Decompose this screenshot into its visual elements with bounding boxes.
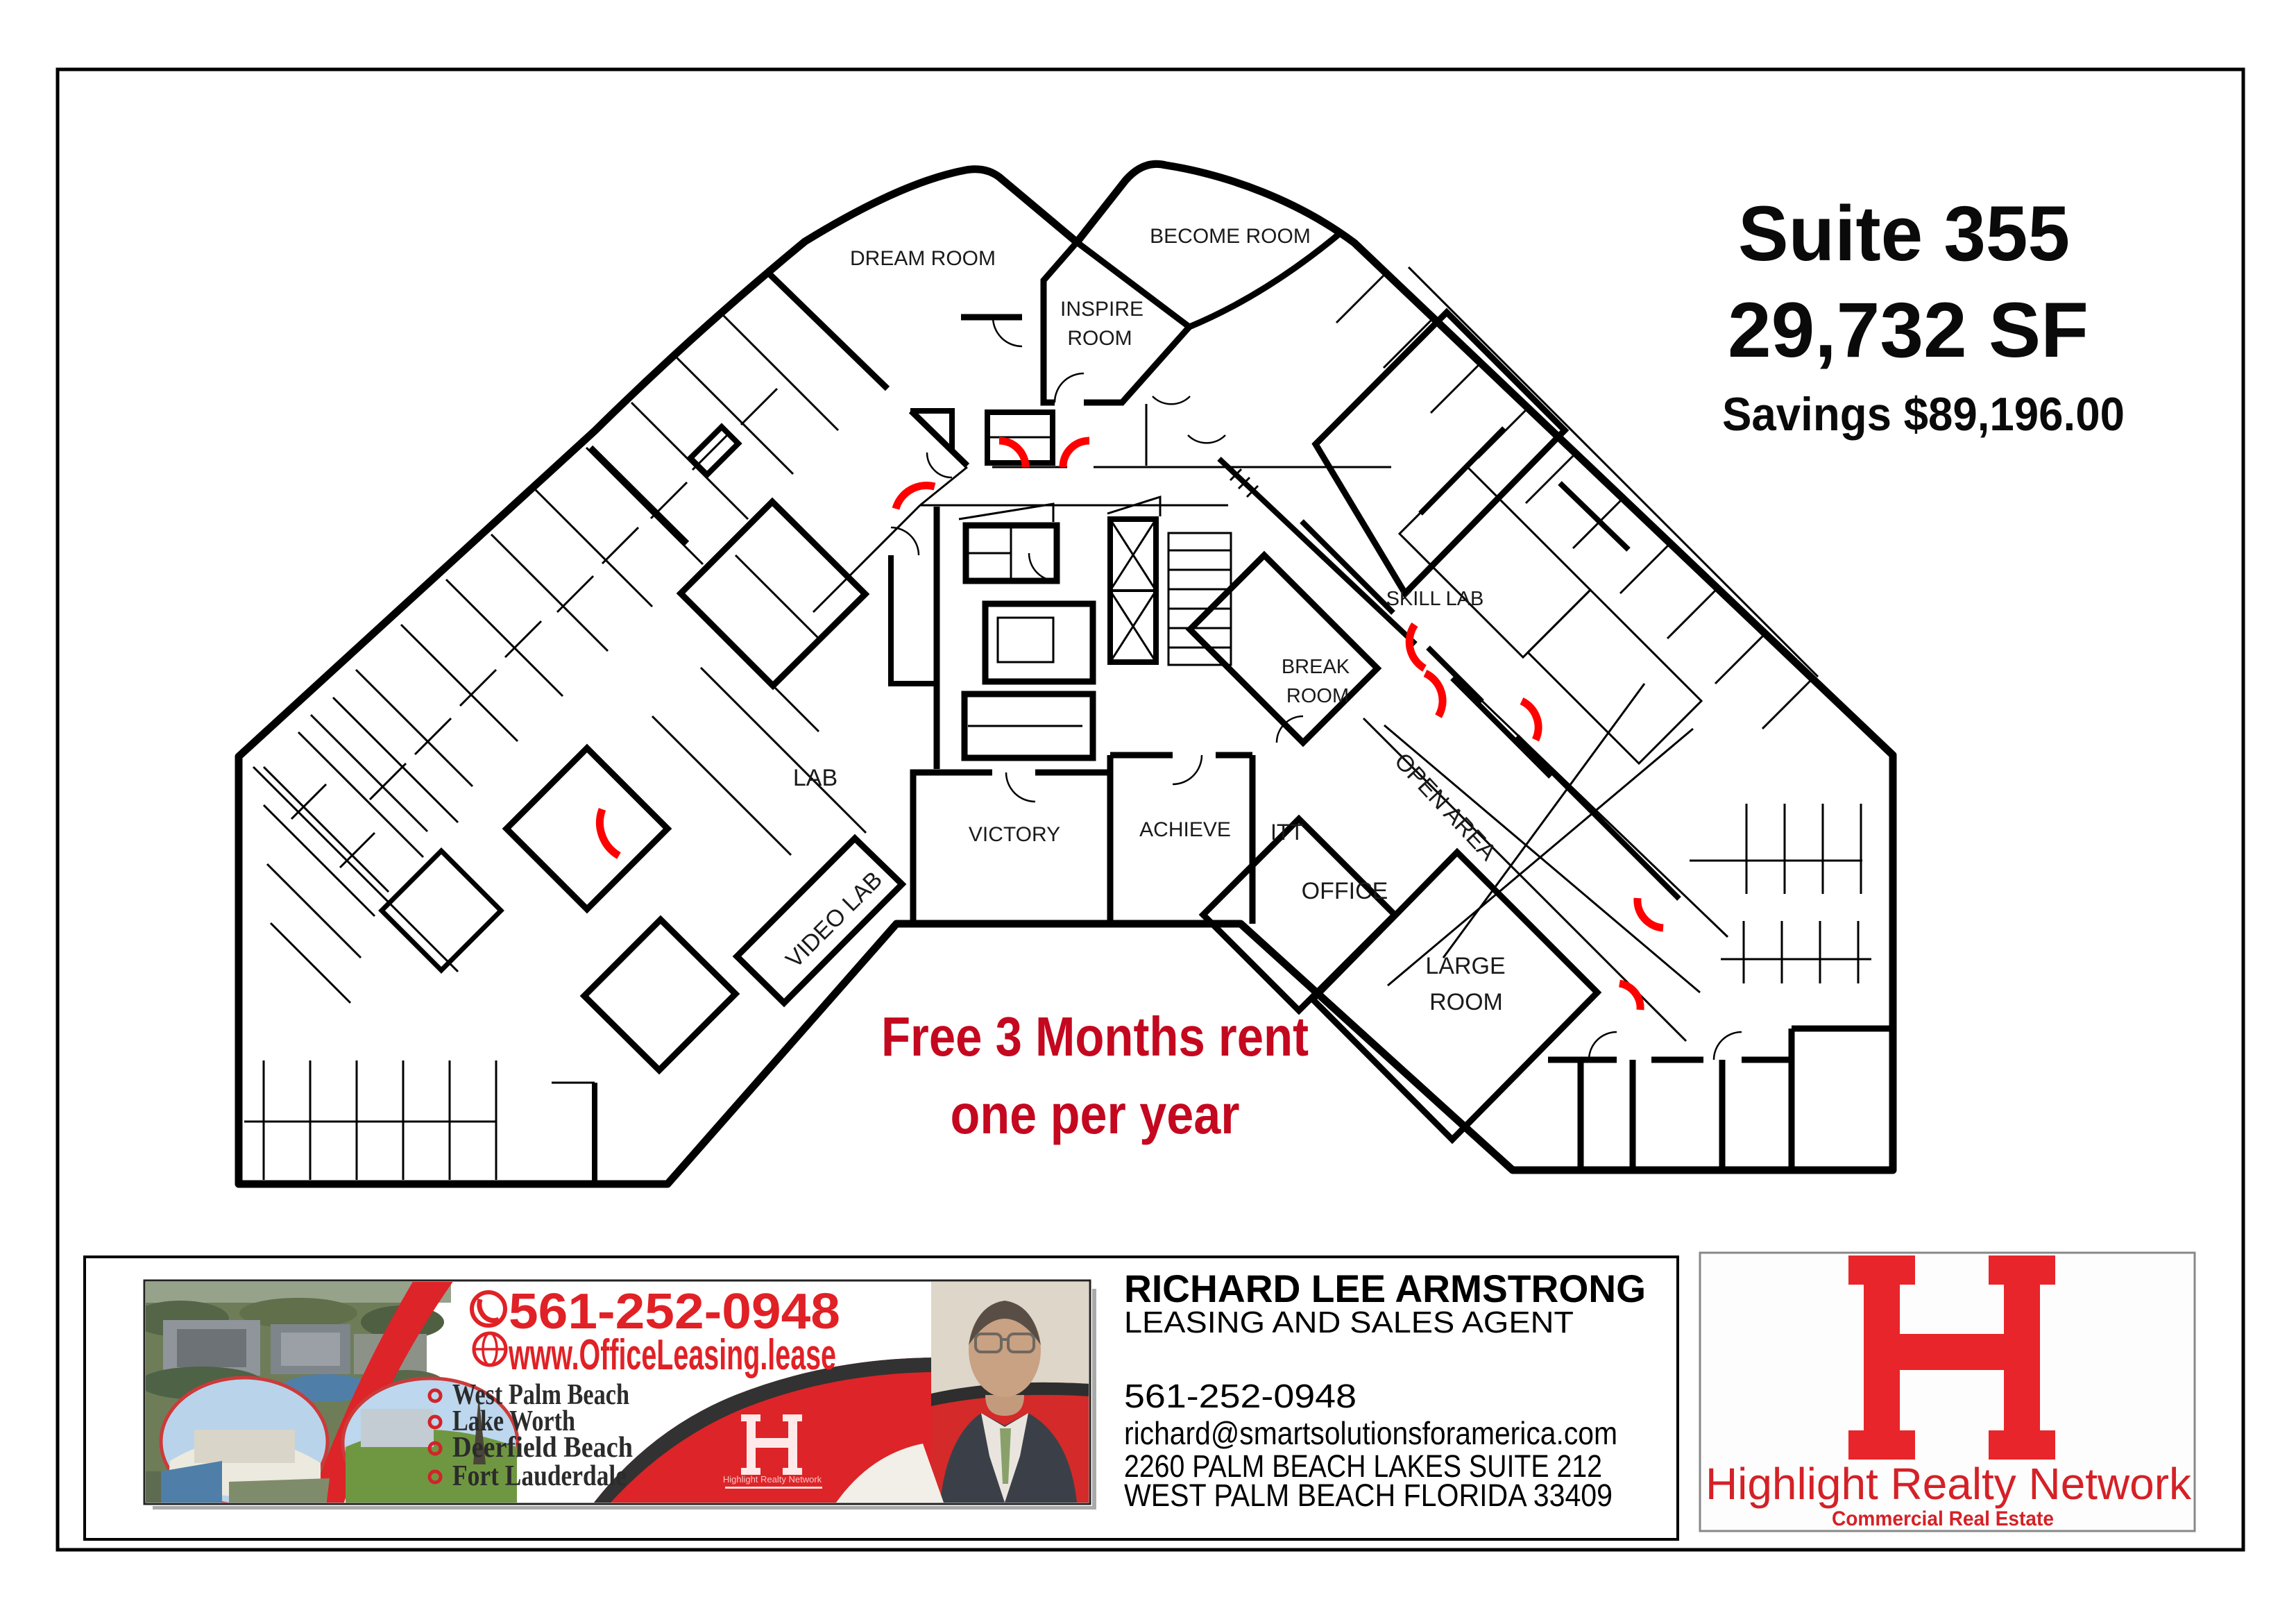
svg-text:richard@smartsolutionsforameri: richard@smartsolutionsforamerica.com	[1124, 1415, 1617, 1451]
svg-text:SKILL LAB: SKILL LAB	[1386, 588, 1484, 610]
svg-text:ROOM: ROOM	[1286, 685, 1349, 707]
svg-text:WEST PALM BEACH FLORIDA 33409: WEST PALM BEACH FLORIDA 33409	[1124, 1478, 1613, 1513]
svg-text:Highlight Realty Network: Highlight Realty Network	[723, 1474, 822, 1485]
svg-text:ROOM: ROOM	[1067, 327, 1132, 350]
svg-text:VICTORY: VICTORY	[969, 823, 1060, 846]
svg-text:INSPIRE: INSPIRE	[1060, 298, 1143, 321]
svg-text:Commercial Real Estate: Commercial Real Estate	[1832, 1507, 2054, 1530]
svg-text:LEASING AND SALES AGENT: LEASING AND SALES AGENT	[1124, 1305, 1574, 1339]
svg-text:Savings $89,196.00: Savings $89,196.00	[1722, 388, 2125, 441]
svg-text:OFFICE: OFFICE	[1302, 878, 1388, 904]
svg-text:BREAK: BREAK	[1282, 656, 1350, 678]
svg-text:one per year: one per year	[951, 1083, 1240, 1145]
svg-text:Deerfield Beach: Deerfield Beach	[452, 1432, 633, 1464]
svg-text:ACHIEVE: ACHIEVE	[1139, 818, 1231, 841]
svg-text:BECOME ROOM: BECOME ROOM	[1150, 225, 1311, 248]
svg-text:LAB: LAB	[793, 765, 837, 791]
svg-text:www.OfficeLeasing.lease: www.OfficeLeasing.lease	[508, 1331, 836, 1379]
svg-text:Highlight Realty Network: Highlight Realty Network	[1706, 1459, 2192, 1509]
svg-text:DREAM ROOM: DREAM ROOM	[850, 247, 996, 270]
svg-text:ITT: ITT	[1270, 820, 1304, 845]
svg-text:Suite 355: Suite 355	[1738, 190, 2070, 277]
svg-text:Free 3 Months rent: Free 3 Months rent	[881, 1006, 1309, 1067]
svg-text:LARGE: LARGE	[1425, 953, 1505, 979]
svg-text:Fort Lauderdale: Fort Lauderdale	[452, 1460, 627, 1492]
svg-text:RICHARD LEE ARMSTRONG: RICHARD LEE ARMSTRONG	[1124, 1267, 1646, 1310]
svg-text:561-252-0948: 561-252-0948	[1124, 1378, 1357, 1415]
svg-text:OPEN AREA: OPEN AREA	[1389, 748, 1502, 866]
svg-text:ROOM: ROOM	[1429, 989, 1503, 1015]
svg-text:29,732 SF: 29,732 SF	[1728, 287, 2089, 373]
